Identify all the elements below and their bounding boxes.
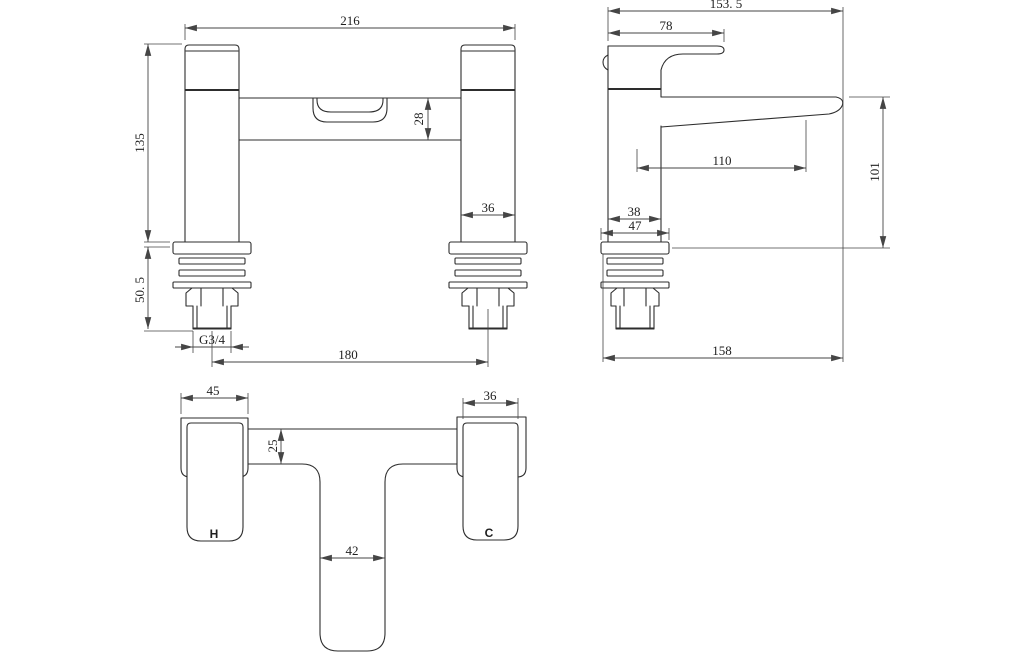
dim-label-28: 28 [411,113,426,126]
dim-spout-height: 101 [672,97,890,248]
washer-plate [173,282,251,288]
washer [179,270,245,276]
front-left-pillar-outline [185,45,239,242]
side-shank [601,242,669,329]
threaded-tail [193,306,231,329]
washer [607,270,663,276]
plan-hot-handle [187,423,243,541]
dim-label-135: 135 [132,133,147,153]
hot-handle-label: H [210,527,219,541]
front-spout-recess-outer [313,98,387,122]
washer-plate [449,282,527,288]
dim-label-110: 110 [712,153,731,168]
dim-label-36: 36 [482,200,496,215]
dim-bar-depth: 25 [265,429,281,464]
extension-line [608,7,843,362]
dim-shank-length: 50. 5 [132,247,193,331]
hex-nut [611,288,659,306]
dim-label-153-5: 153. 5 [710,0,743,11]
front-left-shank [173,242,251,329]
dim-hot-handle-width: 45 [181,383,248,414]
front-spout-recess-inner [317,98,383,112]
washer [455,270,521,276]
dim-handle-length: 78 [608,18,724,42]
bath-tap-technical-drawing: 216 135 28 36 50. 5 G3/4 [0,0,1024,657]
plan-stem-fillets [302,464,403,482]
washer-plate [601,282,669,288]
cold-handle-label: C [485,526,494,540]
extension-line [672,97,890,248]
plan-cold-handle [463,423,518,540]
dim-label-45: 45 [207,383,220,398]
extension-line [144,44,182,242]
dim-label-38: 38 [628,204,641,219]
side-view: 153. 5 78 110 101 38 47 [601,0,890,362]
dim-spout-width: 42 [320,543,385,558]
dim-label-216: 216 [340,13,360,28]
washer [455,258,521,264]
side-spout-outline [661,97,843,127]
washer [179,258,245,264]
dim-label-180: 180 [338,347,358,362]
dim-label-25: 25 [265,440,280,453]
side-body-and-lever-outline [608,46,724,242]
dim-overall-width: 216 [185,13,515,40]
dim-label-101: 101 [867,162,882,182]
dim-label-47: 47 [629,218,643,233]
side-handle-bump [603,55,608,70]
flange-plate [173,242,251,254]
dim-label-158: 158 [712,343,732,358]
washer [607,258,663,264]
dim-label-36-plan: 36 [484,388,498,403]
dim-body-height: 135 [132,44,182,242]
dim-spout-section-height: 28 [411,98,428,140]
plan-spout-stem [320,482,385,651]
hex-nut [186,288,238,306]
dim-label-50-5: 50. 5 [132,277,147,303]
dim-overall-depth: 153. 5 [608,0,843,362]
front-view: 216 135 28 36 50. 5 G3/4 [132,13,527,367]
technical-drawing-page: 216 135 28 36 50. 5 G3/4 [0,0,1024,657]
flange-plate [601,242,669,254]
dim-label-78: 78 [660,18,673,33]
threaded-tail [616,306,654,329]
hex-nut [462,288,514,306]
dim-cold-handle-width: 36 [463,388,518,419]
flange-plate [449,242,527,254]
plan-view: H C 45 36 25 42 [181,383,526,651]
dim-pillar-width: 36 [461,200,515,215]
dim-flange-depth: 47 [601,218,669,240]
dim-tap-centres: 180 [212,309,488,367]
dim-spout-reach: 110 [637,120,806,172]
extension-line [144,247,193,331]
dim-body-depth: 38 [608,204,661,219]
dim-label-42: 42 [346,543,359,558]
